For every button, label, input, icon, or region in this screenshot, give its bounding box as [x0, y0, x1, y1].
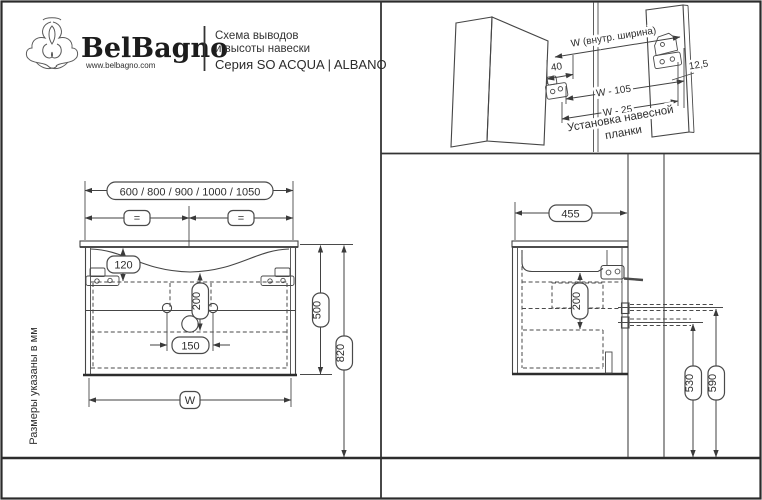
dim-820: 820 — [335, 344, 347, 362]
doc-subtitle-line2: и высоты навески — [215, 43, 310, 55]
units-note: Размеры указаны в мм — [28, 327, 40, 445]
brand-wordmark: BelBagno — [81, 33, 228, 64]
drawing-canvas: BelBagno www.belbagno.com Схема выводов … — [0, 0, 762, 500]
dim-40: 40 — [550, 61, 563, 74]
dim-200-side: 200 — [571, 292, 583, 310]
dim-w: W — [185, 395, 196, 407]
dim-200-front: 200 — [191, 292, 203, 310]
dim-width-options: 600 / 800 / 900 / 1000 / 1050 — [120, 187, 261, 199]
sheet-frame — [2, 1, 762, 499]
series-title: Серия SO ACQUA | ALBANO — [215, 57, 387, 72]
dim-120: 120 — [114, 260, 132, 272]
installation-drawing-sheet: BelBagno www.belbagno.com Схема выводов … — [0, 0, 762, 500]
dim-455: 455 — [561, 209, 579, 221]
dim-150: 150 — [181, 341, 199, 353]
doc-subtitle-line1: Схема выводов — [215, 30, 299, 42]
dim-500: 500 — [312, 301, 324, 319]
dim-equal-right: = — [238, 213, 244, 225]
dim-530: 530 — [684, 374, 696, 392]
dim-equal-left: = — [134, 213, 140, 225]
dim-590: 590 — [707, 374, 719, 392]
brand-website: www.belbagno.com — [85, 61, 156, 70]
